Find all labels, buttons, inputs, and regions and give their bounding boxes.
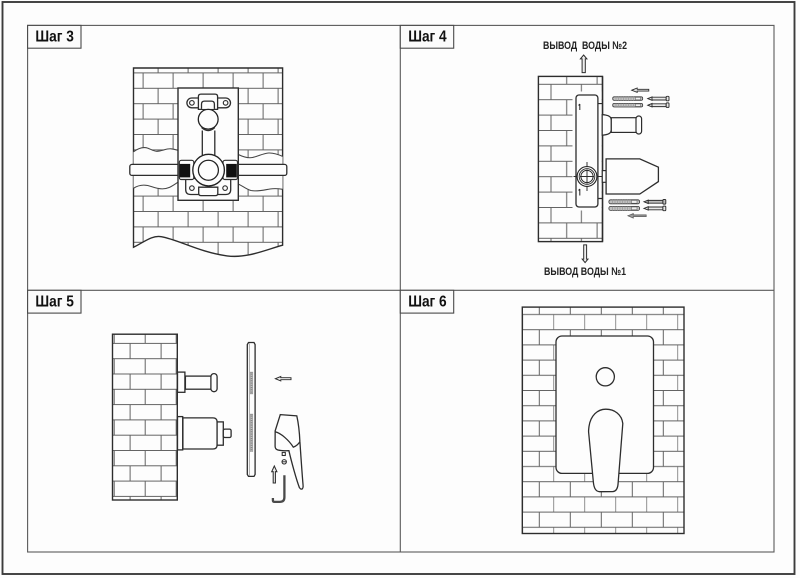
svg-text:Шаг 4: Шаг 4 [408, 29, 447, 46]
svg-text:Шаг 5: Шаг 5 [35, 294, 74, 311]
svg-text:Шаг 3: Шаг 3 [35, 29, 74, 46]
svg-text:ВЫВОД ВОДЫ №2: ВЫВОД ВОДЫ №2 [543, 40, 627, 52]
svg-text:ВЫВОД ВОДЫ №1: ВЫВОД ВОДЫ №1 [544, 266, 626, 278]
svg-text:Шаг 6: Шаг 6 [408, 294, 447, 311]
